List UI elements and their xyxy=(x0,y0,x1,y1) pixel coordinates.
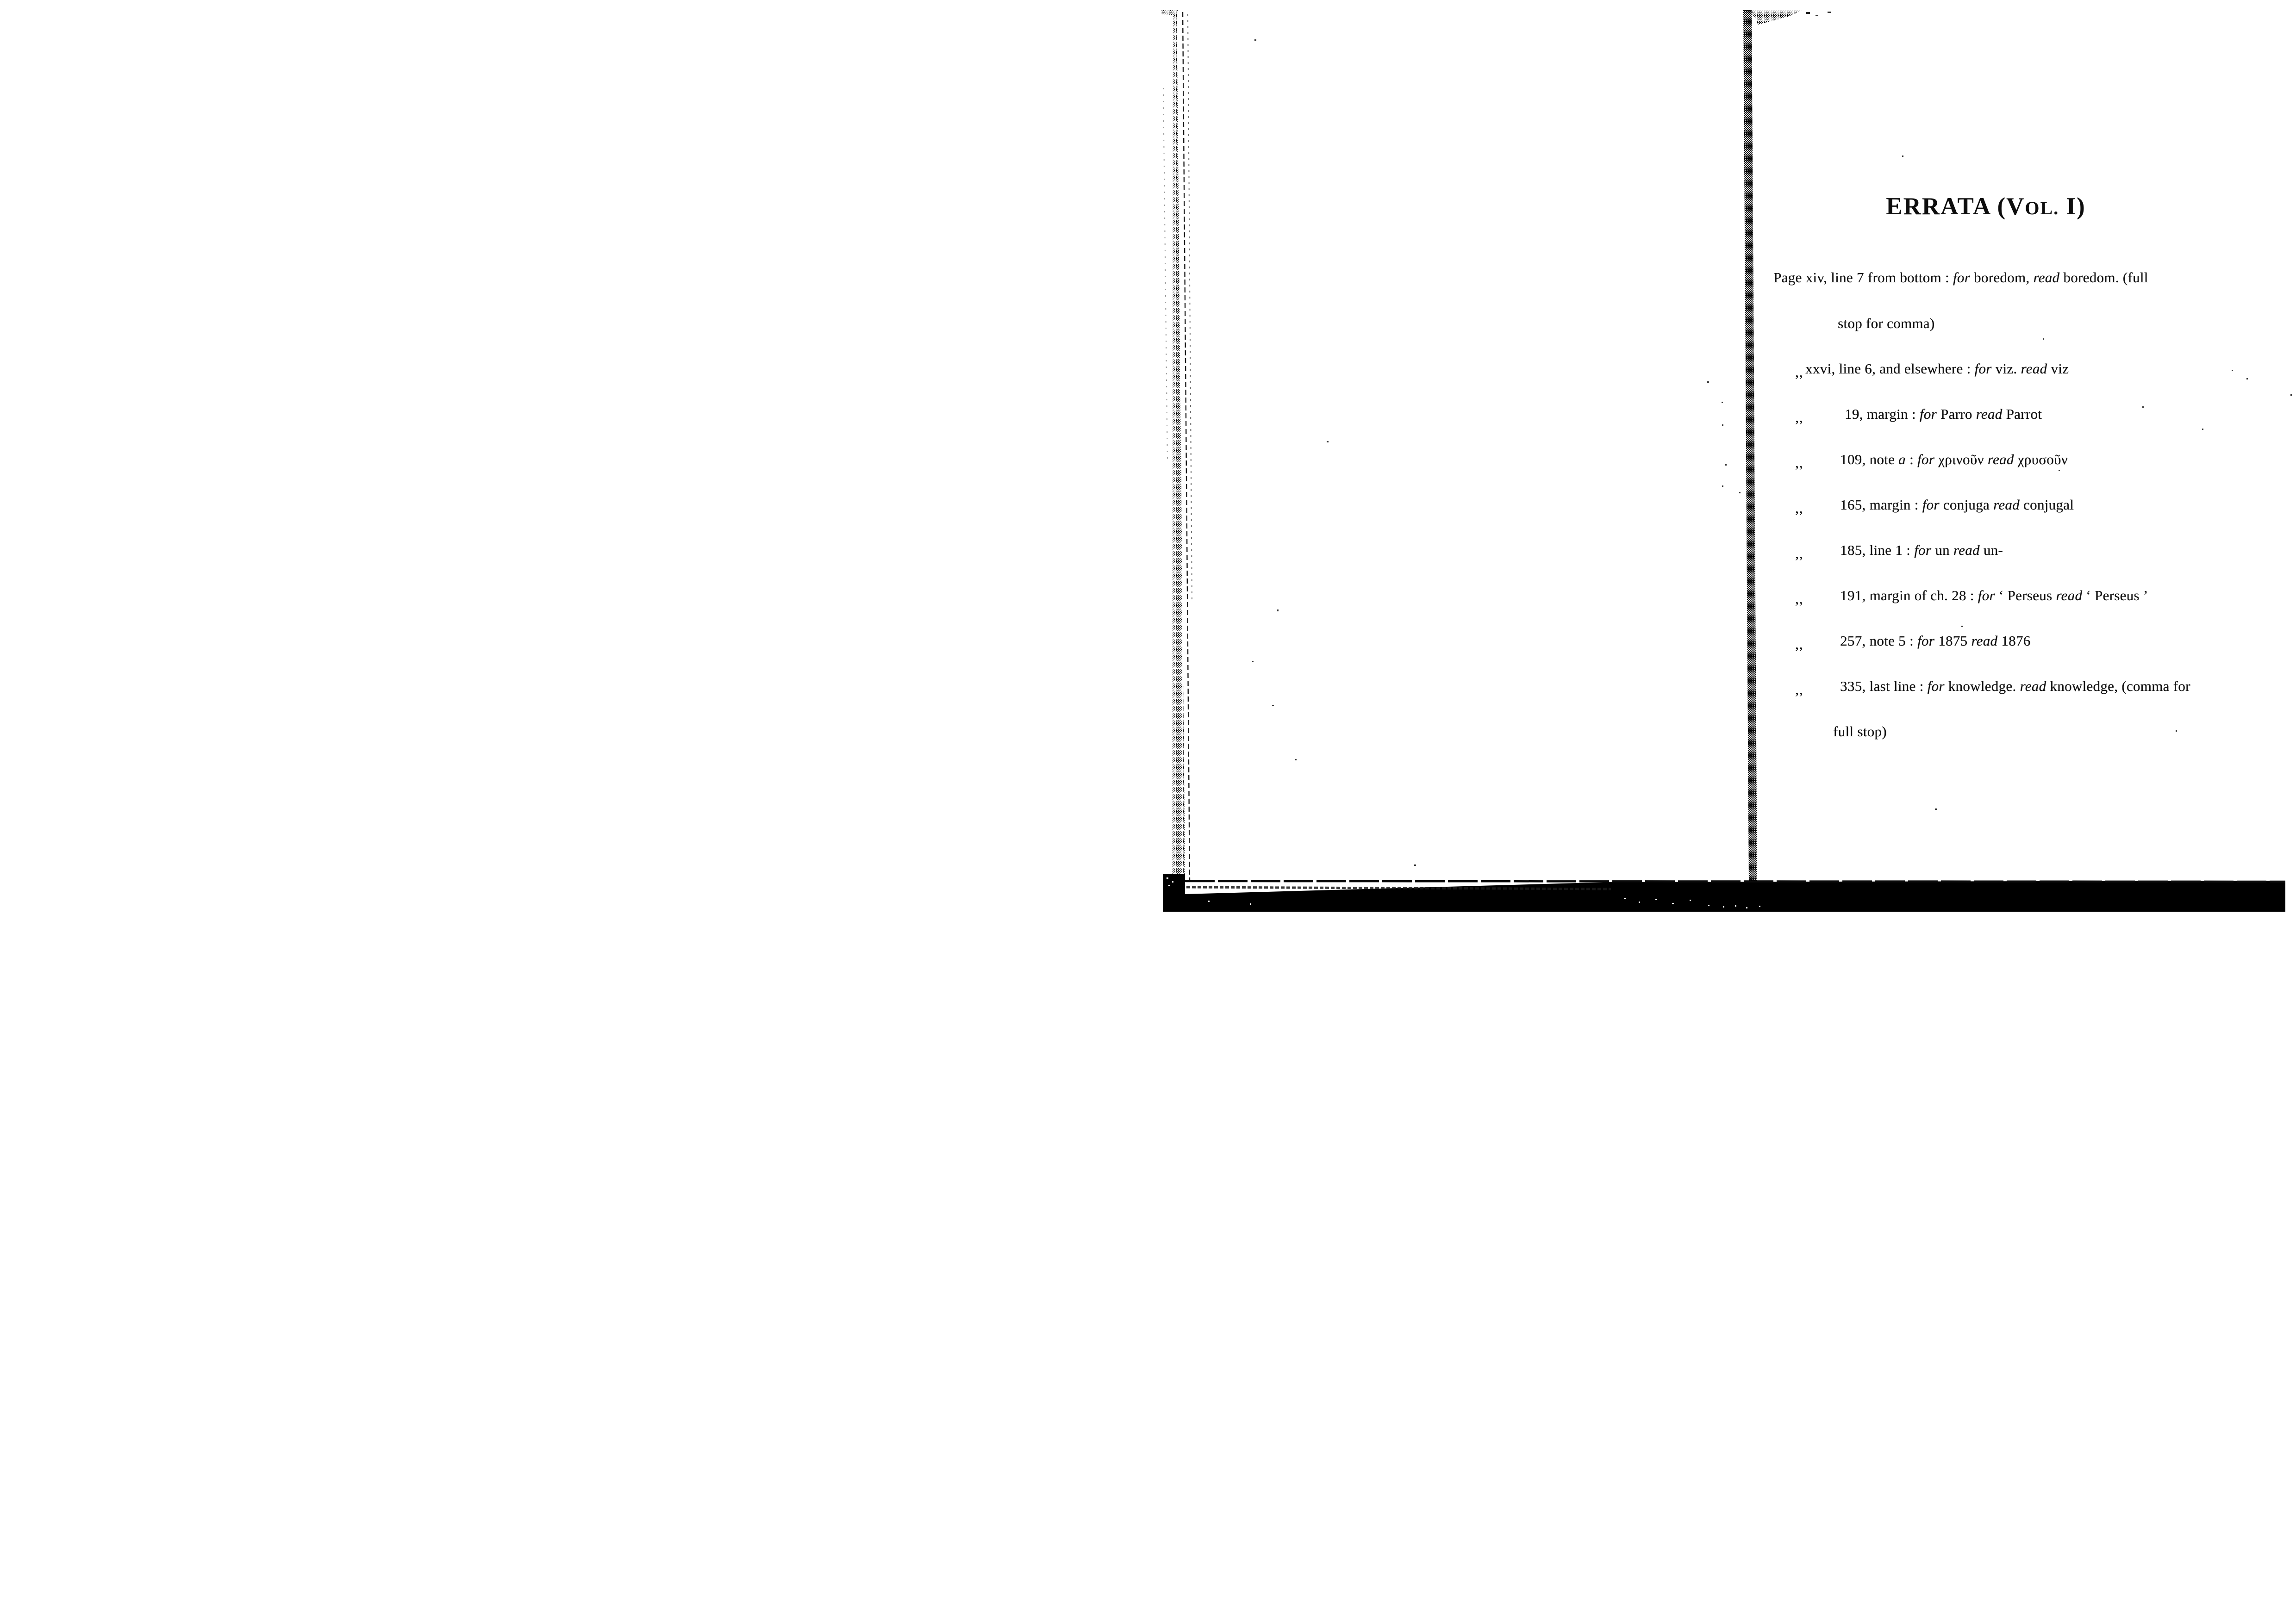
errata-text: χρινοῦν xyxy=(1934,451,1988,467)
errata-text: read xyxy=(2056,587,2082,603)
errata-line-continuation: full stop) xyxy=(1773,724,2264,740)
errata-text: boredom. (full xyxy=(2059,269,2148,286)
errata-text: xxvi, line 6, and elsewhere : xyxy=(1805,361,1974,377)
corner-smudge-left xyxy=(1161,10,1178,15)
errata-line: ,,191, margin of ch. 28 : for ‘ Perseus … xyxy=(1773,588,2264,603)
errata-line: ,,19, margin : for Parro read Parrot xyxy=(1773,407,2264,422)
errata-text: viz. xyxy=(1991,361,2021,377)
ditto-mark: ,, xyxy=(1773,637,1840,652)
errata-text: knowledge. xyxy=(1945,678,2020,694)
errata-text: for xyxy=(1953,269,1970,286)
errata-line: ,,xxvi, line 6, and elsewhere : for viz.… xyxy=(1773,361,2264,377)
errata-text: : xyxy=(1906,451,1917,467)
ditto-mark: ,, xyxy=(1773,365,1805,380)
errata-line: ,,185, line 1 : for un read un- xyxy=(1773,543,2264,558)
page-title: ERRATA (VOL. I) xyxy=(1771,193,2201,220)
errata-text: 191, margin of ch. 28 : xyxy=(1840,587,1978,603)
errata-text: 1876 xyxy=(1997,633,2030,649)
ditto-mark: ,, xyxy=(1773,455,1840,471)
book-scan-page: ERRATA (VOL. I) Page xiv, line 7 from bo… xyxy=(0,0,2296,1623)
ditto-mark: ,, xyxy=(1773,682,1840,697)
errata-line: ,,257, note 5 : for 1875 read 1876 xyxy=(1773,634,2264,649)
errata-text: un- xyxy=(1980,542,2003,558)
errata-text: read xyxy=(1993,497,2020,513)
corner-smudge-spine xyxy=(1751,11,1802,25)
page-edge-lines-left xyxy=(1161,10,1192,880)
errata-line: ,,109, note a : for χρινοῦν read χρυσοῦν xyxy=(1773,452,2264,467)
title-smallcaps: OL. xyxy=(2025,198,2059,218)
errata-text: Parrot xyxy=(2002,406,2042,422)
errata-text: read xyxy=(1976,406,2003,422)
errata-text: 165, margin : xyxy=(1840,497,1922,513)
errata-text: ‘ Perseus xyxy=(1995,587,2056,603)
title-part1: ERRATA (V xyxy=(1886,193,2025,220)
errata-text: Parro xyxy=(1937,406,1976,422)
errata-text: for xyxy=(1978,587,1995,603)
errata-text: Page xiv, line 7 from bottom : xyxy=(1773,269,1953,286)
errata-text: conjuga xyxy=(1940,497,1993,513)
errata-text: for xyxy=(1920,406,1937,422)
errata-line: ,,165, margin : for conjuga read conjuga… xyxy=(1773,497,2264,513)
errata-text: 257, note 5 : xyxy=(1840,633,1917,649)
ditto-mark: ,, xyxy=(1773,591,1840,607)
errata-text: read xyxy=(2033,269,2059,286)
errata-text: for xyxy=(1922,497,1940,513)
scanner-bar-main xyxy=(1185,881,2285,912)
errata-text: boredom, xyxy=(1970,269,2033,286)
errata-text: for xyxy=(1914,542,1931,558)
ditto-mark: ,, xyxy=(1773,546,1840,561)
errata-text: χρυσοῦν xyxy=(2014,451,2068,467)
errata-text: viz xyxy=(2047,361,2069,377)
errata-list: Page xiv, line 7 from bottom : for bored… xyxy=(1773,240,2264,770)
errata-text: read xyxy=(2020,678,2046,694)
errata-text: conjugal xyxy=(2020,497,2074,513)
errata-text: 19, margin : xyxy=(1845,406,1920,422)
title-part3: I) xyxy=(2059,193,2086,220)
errata-text: for xyxy=(1974,361,1991,377)
errata-line-continuation: stop for comma) xyxy=(1773,316,2264,331)
errata-text: 109, note xyxy=(1840,451,1898,467)
errata-text: for xyxy=(1917,633,1934,649)
errata-text: read xyxy=(1953,542,1980,558)
errata-text: knowledge, (comma for xyxy=(2046,678,2190,694)
errata-text: read xyxy=(1971,633,1997,649)
errata-text: 185, line 1 : xyxy=(1840,542,1914,558)
errata-text: for xyxy=(1928,678,1945,694)
errata-text: 335, last line : xyxy=(1840,678,1928,694)
ditto-mark: ,, xyxy=(1773,410,1845,425)
scanner-bar-left-block xyxy=(1163,874,1185,912)
errata-text: read xyxy=(2021,361,2047,377)
errata-text: read xyxy=(1988,451,2014,467)
errata-text: ‘ Perseus ’ xyxy=(2082,587,2148,603)
errata-text: 1875 xyxy=(1934,633,1971,649)
errata-text: un xyxy=(1931,542,1953,558)
errata-line: Page xiv, line 7 from bottom : for bored… xyxy=(1773,270,2264,286)
errata-text: full stop) xyxy=(1833,723,1887,740)
errata-line: ,,335, last line : for knowledge. read k… xyxy=(1773,679,2264,694)
errata-text: stop for comma) xyxy=(1838,315,1934,331)
errata-text: for xyxy=(1917,451,1934,467)
scanner-bar xyxy=(1163,874,2285,912)
errata-text: a xyxy=(1898,451,1906,467)
ditto-mark: ,, xyxy=(1773,501,1840,516)
